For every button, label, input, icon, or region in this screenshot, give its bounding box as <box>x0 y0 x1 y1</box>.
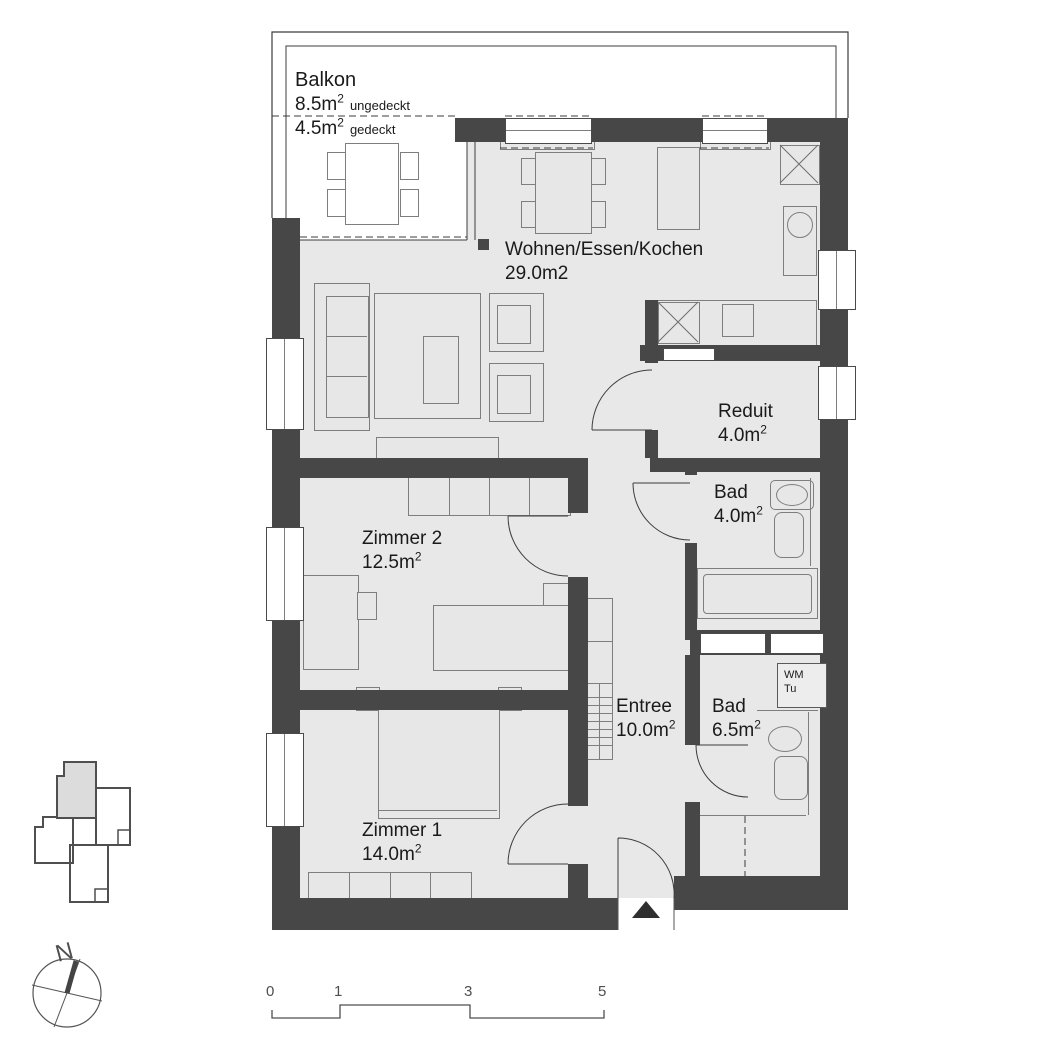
room-label-bad-oben: Bad 4.0m2 <box>714 481 763 529</box>
wall-zimmer2-wohnen <box>300 458 588 478</box>
dining-chair <box>591 158 606 185</box>
room-name: Bad <box>714 481 763 505</box>
wardrobe-divider <box>529 474 530 515</box>
kitchen-island <box>657 147 700 230</box>
room-label-bad-unten: Bad 6.5m2 <box>712 695 761 743</box>
desk <box>303 575 359 670</box>
window <box>266 338 304 430</box>
armchair-seat <box>497 305 531 344</box>
balcony-name: Balkon <box>295 68 410 93</box>
pass-through <box>663 348 715 361</box>
kitchen-sink <box>787 212 813 238</box>
window-pane-line <box>284 528 285 620</box>
room-name: Zimmer 2 <box>362 527 442 551</box>
wall-zimmer1-zimmer2 <box>300 690 570 710</box>
room-label-wohnen: Wohnen/Essen/Kochen 29.0m2 <box>505 238 703 286</box>
window-pane-line <box>836 367 837 419</box>
wall-niche <box>770 633 824 654</box>
kitchen-appliance-x <box>780 145 820 185</box>
window-pane-line <box>836 251 837 309</box>
window-pane-line <box>284 339 285 429</box>
window-pane-line <box>703 130 767 131</box>
sideboard <box>376 437 499 459</box>
site-unit-highlighted <box>57 762 96 818</box>
site-plan <box>35 762 130 902</box>
dining-chair <box>521 158 536 185</box>
column <box>478 239 489 250</box>
scale-label-1: 1 <box>334 983 342 1000</box>
balcony-table <box>345 143 399 225</box>
wall-bottom <box>674 876 848 910</box>
wall-reduit-left <box>645 430 658 458</box>
room-area: 14.0m2 <box>362 843 442 867</box>
kitchen-appliance-x <box>658 302 700 344</box>
balcony-label: Balkon 8.5m2ungedeckt 4.5m2gedeckt <box>295 68 410 141</box>
room-name: Bad <box>712 695 761 719</box>
shelf-vline <box>599 683 600 759</box>
wall-top <box>590 118 702 142</box>
balcony-chair <box>327 189 346 217</box>
balcony-chair <box>327 152 346 180</box>
wall-corridor <box>568 864 588 898</box>
site-unit <box>96 788 130 845</box>
room-label-reduit: Reduit 4.0m2 <box>718 400 773 448</box>
scale-bar-line <box>272 1005 604 1018</box>
room-area: 10.0m2 <box>616 719 676 743</box>
window <box>505 118 592 144</box>
scale-label-0: 0 <box>266 983 274 1000</box>
washbasin-bowl <box>776 484 808 506</box>
room-name: Reduit <box>718 400 773 424</box>
scale-label-3: 3 <box>464 983 472 1000</box>
wall-right <box>820 308 848 366</box>
kitchen-hob <box>722 304 754 337</box>
shower-line <box>698 815 806 816</box>
room-label-entree: Entree 10.0m2 <box>616 695 676 743</box>
entry-door-opening <box>618 898 674 930</box>
desk-chair <box>357 592 377 620</box>
wardrobe <box>408 473 571 516</box>
entree-shelf <box>586 598 613 760</box>
balcony-chair <box>400 152 419 180</box>
wall-corridor <box>568 458 588 513</box>
dining-chair <box>591 201 606 228</box>
wall-bad-left <box>685 470 697 475</box>
scale-bar <box>272 1005 604 1018</box>
washbasin <box>768 726 802 752</box>
wall-corridor <box>568 577 588 806</box>
wall-bottom <box>272 898 618 930</box>
wm-label: WM <box>784 668 826 682</box>
sofa-seat <box>326 296 369 418</box>
wall-kitchen-left <box>645 300 658 363</box>
dining-table <box>535 152 592 234</box>
room-name: Wohnen/Essen/Kochen <box>505 238 703 262</box>
balcony-area2: 4.5m2gedeckt <box>295 117 410 141</box>
window <box>818 366 856 420</box>
site-unit-notch <box>95 889 107 902</box>
scale-label-5: 5 <box>598 983 606 1000</box>
bed <box>433 605 569 671</box>
window-pane-line <box>506 130 591 131</box>
compass-needle <box>67 961 76 993</box>
room-label-zimmer2: Zimmer 2 12.5m2 <box>362 527 442 575</box>
wall-right <box>820 118 848 250</box>
window <box>266 527 304 621</box>
window <box>266 733 304 827</box>
room-name: Zimmer 1 <box>362 819 442 843</box>
compass-n-label: N <box>53 937 77 968</box>
room-area: 4.0m2 <box>714 505 763 529</box>
balcony-chair <box>400 189 419 217</box>
wardrobe-divider <box>489 474 490 515</box>
double-bed <box>378 703 500 819</box>
wall-niche <box>700 633 766 654</box>
counter-line <box>810 478 811 566</box>
room-name: Entree <box>616 695 676 719</box>
wall-bad2-left <box>685 802 700 876</box>
room-area: 12.5m2 <box>362 551 442 575</box>
bed-pillow <box>543 583 569 606</box>
wall-bad-left <box>685 543 697 640</box>
wall-reduit-bad <box>650 458 822 472</box>
dining-chair <box>521 201 536 228</box>
bathtub-inner <box>703 574 812 614</box>
bed-foot-line <box>379 810 497 811</box>
toilet <box>774 756 808 800</box>
compass: N <box>32 937 102 1027</box>
tu-label: Tu <box>784 682 826 696</box>
room-area: 29.0m2 <box>505 262 703 286</box>
window <box>818 250 856 310</box>
washing-machine-box: WM Tu <box>777 663 827 708</box>
window-pane-line <box>284 734 285 826</box>
wall-top <box>455 118 505 142</box>
wall-bad2-left <box>685 655 700 745</box>
toilet <box>774 512 804 558</box>
balcony-area1: 8.5m2ungedeckt <box>295 93 410 117</box>
coffee-table <box>423 336 459 404</box>
compass-circle <box>33 959 101 1027</box>
site-unit <box>35 817 73 863</box>
wardrobe-divider <box>449 474 450 515</box>
sofa-cushion-line <box>327 336 367 337</box>
counter-line <box>808 712 809 815</box>
armchair-seat <box>497 375 531 414</box>
site-unit-notch <box>118 830 130 845</box>
site-unit <box>70 845 108 902</box>
shelf-line <box>587 641 612 642</box>
room-label-zimmer1: Zimmer 1 14.0m2 <box>362 819 442 867</box>
window <box>702 118 768 144</box>
room-area: 6.5m2 <box>712 719 761 743</box>
floorplan-canvas: WM Tu Balkon 8.5m2ungedeckt 4.5m2gedeckt… <box>0 0 1061 1061</box>
shelf-line <box>757 710 818 711</box>
compass-cross-lines <box>32 959 102 1027</box>
room-area: 4.0m2 <box>718 424 773 448</box>
sofa-cushion-line <box>327 376 367 377</box>
